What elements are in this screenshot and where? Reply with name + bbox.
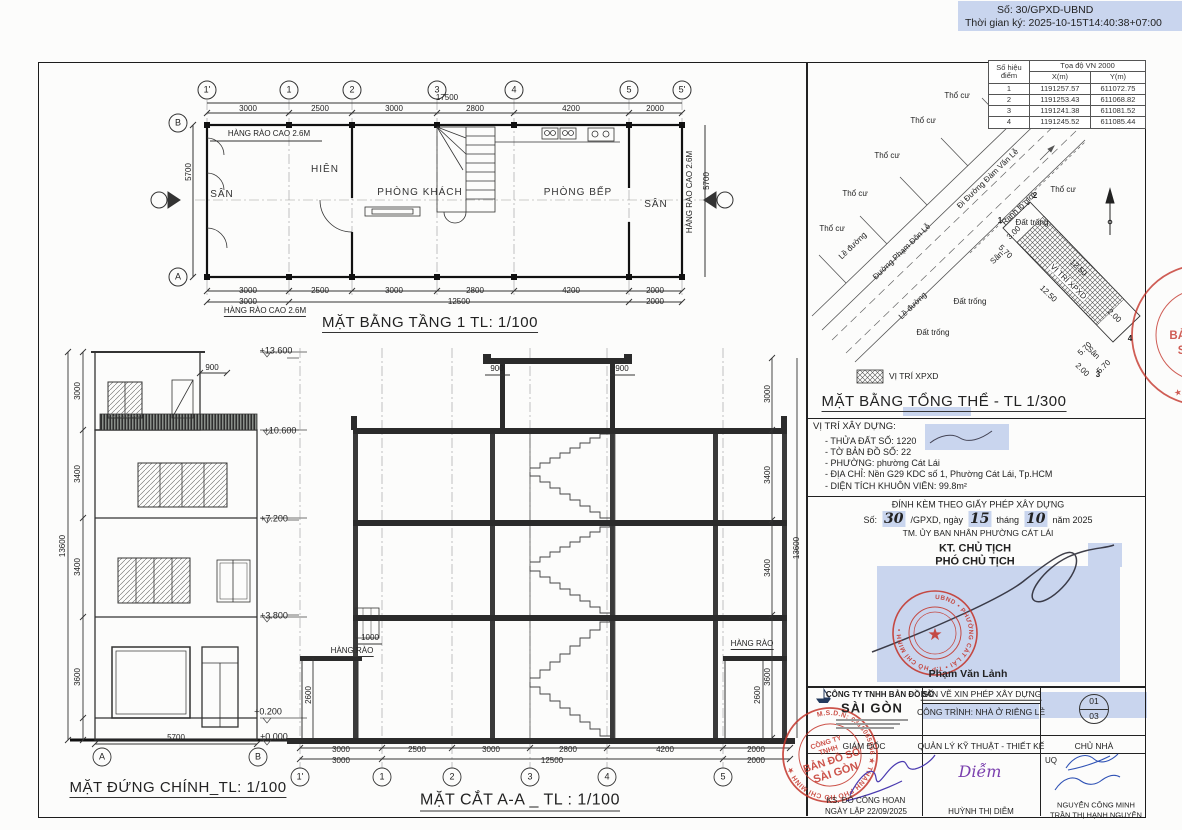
- lot-label: Đất trống: [954, 298, 987, 306]
- director-name: KS. ĐỖ CÔNG HOAN: [827, 797, 906, 805]
- cell: 611072.75: [1090, 83, 1145, 94]
- room-label: PHÒNG BẾP: [544, 188, 612, 198]
- fence-note: HÀNG RÀO CAO 2.6M: [224, 307, 306, 317]
- dim-label: 4200: [656, 746, 674, 754]
- lot-label: Thổ cư: [1050, 186, 1075, 194]
- room-label: SÂN: [644, 200, 668, 210]
- company-name-line1: CÔNG TY TNHH BẢN ĐỒ SỐ: [826, 691, 934, 699]
- dim-label: 900: [615, 365, 628, 373]
- permit-year: năm 2025: [1053, 515, 1093, 525]
- dim-label: 4200: [562, 105, 580, 113]
- level-label: +0.200: [254, 708, 282, 717]
- level-label: +13.600: [260, 347, 293, 356]
- fence-note: HÀNG RÀO CAO 2.6M: [686, 151, 694, 233]
- coord-col-x: X(m): [1030, 72, 1091, 83]
- grid-bubble-label: 1': [204, 86, 211, 95]
- dim-label: 3000: [385, 105, 403, 113]
- title-block-h2: [806, 753, 1146, 754]
- dim-label: 2500: [311, 287, 329, 295]
- site-plan-title: MẶT BẰNG TỔNG THỂ - TL 1/300: [822, 394, 1067, 412]
- level-label: ±0.000: [260, 733, 287, 742]
- project-label: CÔNG TRÌNH: NHÀ Ở RIÊNG LẺ: [917, 708, 1045, 717]
- dim-label: 900: [490, 365, 503, 373]
- sheet-border: [38, 62, 1146, 818]
- title-block-split: [922, 703, 1040, 704]
- lot-label: Đất trống: [1016, 219, 1049, 227]
- grid-bubble-label: 2: [349, 86, 354, 95]
- permit-signer-name: Phạm Văn Lảnh: [929, 669, 1008, 680]
- stamp-line: BẢN ĐỒ SỐ: [1169, 328, 1182, 342]
- permit-month: 10: [1024, 511, 1047, 527]
- grid-bubble-label: 1': [297, 773, 304, 782]
- cell: 1: [989, 83, 1030, 94]
- dim-label: 4200: [562, 287, 580, 295]
- title-block-top: [806, 686, 1146, 688]
- permit-kt-line: KT. CHỦ TỊCH: [939, 544, 1011, 555]
- table-row: 11191257.57611072.75: [989, 83, 1146, 94]
- column-header-designer: QUẢN LÝ KỸ THUẬT - THIẾT KẾ: [918, 742, 1045, 751]
- title-block-v1: [922, 686, 923, 816]
- drawing-type-label: BẢN VẼ XIN PHÉP XÂY DỰNG: [921, 690, 1042, 701]
- point-label: 4: [1128, 335, 1132, 343]
- panel-divider: [806, 62, 808, 816]
- level-label: +7.200: [260, 515, 288, 524]
- build-info-box-bottom: [806, 496, 1146, 497]
- dim-label: 2600: [754, 686, 762, 704]
- room-label: HIÊN: [311, 165, 339, 175]
- table-row: 41191245.52611085.44: [989, 117, 1146, 128]
- dim-label: 2800: [559, 746, 577, 754]
- cell: 4: [989, 117, 1030, 128]
- permit-pho-line: PHÓ CHỦ TỊCH: [935, 557, 1014, 568]
- dim-label: 3000: [332, 757, 350, 765]
- dim-label: 5700: [185, 163, 193, 181]
- fence-note: HÀNG RÀO CAO 2.6M: [228, 130, 310, 138]
- dim-label: 900: [205, 364, 218, 372]
- grid-bubble-label: B: [175, 119, 181, 128]
- room-label: SÂN: [210, 190, 234, 200]
- build-info-line: - TỜ BẢN ĐỒ SỐ: 22: [825, 447, 911, 457]
- dim-label: 3600: [764, 668, 772, 686]
- build-info-line: - PHƯỜNG: phường Cát Lái: [825, 458, 940, 468]
- company-address-line: [836, 727, 894, 729]
- permit-month-label: tháng: [996, 515, 1019, 525]
- stamp-line: SÀI GÒN: [1178, 344, 1182, 357]
- lot-label: Thổ cư: [819, 225, 844, 233]
- dim-label: 3000: [239, 105, 257, 113]
- grid-bubble-label: 3: [527, 773, 532, 782]
- title-block-h1: [806, 735, 1146, 736]
- dim-label: 3000: [385, 287, 403, 295]
- table-row: 31191241.38611081.52: [989, 106, 1146, 117]
- company-name-line2: SÀI GÒN: [841, 702, 903, 715]
- dim-label: 17500: [436, 94, 458, 102]
- dim-label: 2000: [646, 287, 664, 295]
- cell: 611068.82: [1090, 94, 1145, 105]
- dim-label: 13600: [59, 535, 67, 557]
- cell: 611085.44: [1090, 117, 1145, 128]
- grid-bubble-label: 4: [511, 86, 516, 95]
- cell: 3: [989, 106, 1030, 117]
- fence-note: HÀNG RÀO: [731, 640, 774, 650]
- cell: 1191241.38: [1030, 106, 1091, 117]
- dim-label: 3000: [239, 298, 257, 306]
- dim-label: 13600: [793, 537, 801, 559]
- company-address-line: [836, 723, 900, 725]
- fence-note: HÀNG RÀO: [331, 647, 374, 657]
- permit-tm-line: TM. ỦY BAN NHÂN PHƯỜNG CÁT LÁI: [903, 529, 1054, 538]
- dim-label: 3000: [74, 382, 82, 400]
- lot-label: Thổ cư: [842, 190, 867, 198]
- dim-label: 2000: [646, 105, 664, 113]
- lot-label: Thổ cư: [910, 117, 935, 125]
- dim-label: 3000: [239, 287, 257, 295]
- permit-no-mid: /GPXD, ngày: [910, 515, 963, 525]
- cell: 2: [989, 94, 1030, 105]
- level-label: +10.600: [264, 427, 297, 436]
- dim-label: 3000: [332, 746, 350, 754]
- point-label: 1: [998, 217, 1002, 225]
- coordinate-table: Số hiệu điểm Tọa độ VN 2000 X(m) Y(m) 11…: [988, 60, 1146, 129]
- elevation-title: MẶT ĐỨNG CHÍNH_TL: 1/100: [69, 780, 286, 798]
- permit-attach-line: ĐÍNH KÈM THEO GIẤY PHÉP XÂY DỰNG: [892, 501, 1065, 510]
- section-title: MẶT CẮT A-A _ TL : 1/100: [420, 793, 620, 812]
- company-address-line: [836, 719, 908, 721]
- column-header-director: GIÁM ĐỐC: [843, 742, 886, 751]
- table-row: 21191253.43611068.82: [989, 94, 1146, 105]
- dim-label: 12500: [541, 757, 563, 765]
- grid-bubble-label: 5: [720, 773, 725, 782]
- cell: 1191253.43: [1030, 94, 1091, 105]
- dim-label: 5700: [167, 734, 185, 742]
- edge-stamp-ring-text: M.S.D.N: 0318065956 ★ THÀNH PHỐ HỒ CHÍ M…: [1172, 268, 1182, 402]
- dim-label: 3600: [74, 668, 82, 686]
- cell: 611081.52: [1090, 106, 1145, 117]
- dim-label: 2500: [408, 746, 426, 754]
- sheet-number: 01: [1080, 695, 1108, 710]
- grid-bubble-label: A: [175, 273, 181, 282]
- dim-label: 3400: [74, 558, 82, 576]
- permit-day: 15: [968, 511, 991, 527]
- build-info-line: - ĐỊA CHỈ: Nền G29 KDC số 1, Phường Cát …: [825, 469, 1052, 479]
- permit-no-prefix: Số:: [863, 515, 877, 525]
- grid-bubble-label: 5: [626, 86, 631, 95]
- title-block-v2: [1040, 686, 1041, 816]
- floor-plan-title: MẶT BẰNG TẦNG 1 TL: 1/100: [322, 315, 538, 333]
- dim-label: 3000: [764, 385, 772, 403]
- lot-label: Đất trống: [917, 329, 950, 337]
- coord-col-y: Y(m): [1090, 72, 1145, 83]
- level-label: +3.800: [260, 612, 288, 621]
- build-info-title: VỊ TRÍ XÂY DỰNG:: [813, 422, 896, 433]
- dim-label: 2000: [747, 746, 765, 754]
- grid-bubble-label: 2: [449, 773, 454, 782]
- dim-label: 2800: [466, 287, 484, 295]
- owner-name-1: NGUYỄN CÔNG MINH: [1057, 801, 1135, 809]
- dim-label: 2500: [311, 105, 329, 113]
- sheet-number-circle: 01 03: [1079, 694, 1109, 724]
- cell: 1191245.52: [1030, 117, 1091, 128]
- designer-name: HUỲNH THỊ DIỄM: [948, 808, 1014, 816]
- permit-no-value: 30: [882, 511, 905, 527]
- dim-label: 3000: [482, 746, 500, 754]
- doc-sign-time: Thời gian ký: 2025-10-15T14:40:38+07:00: [965, 17, 1162, 29]
- coord-col-group: Tọa độ VN 2000: [1030, 61, 1146, 72]
- build-info-box-top: [806, 418, 1146, 419]
- grid-bubble-label: 1: [286, 86, 291, 95]
- designer-signature: Diễm: [959, 764, 1002, 780]
- dim-label: 3400: [764, 466, 772, 484]
- grid-bubble-label: 5': [679, 86, 686, 95]
- cell: 1191257.57: [1030, 83, 1091, 94]
- dim-label: 2800: [466, 105, 484, 113]
- coord-col-point: Số hiệu điểm: [989, 61, 1030, 84]
- dim-label: 5700: [703, 172, 711, 190]
- doc-number: Số: 30/GPXD-UBND: [997, 4, 1093, 16]
- grid-bubble-label: B: [255, 753, 261, 762]
- dim-label: 2600: [305, 686, 313, 704]
- build-info-line: - THỬA ĐẤT SỐ: 1220: [825, 436, 916, 446]
- dim-label: 3400: [764, 559, 772, 577]
- column-header-owner: CHỦ NHÀ: [1075, 742, 1114, 751]
- permit-drawing-sheet: UBND • PHƯỜNG CÁT LÁI • T.P HỒ CHÍ MINH …: [0, 0, 1182, 830]
- owner-name-2: TRẦN THỊ HẠNH NGUYÊN: [1050, 811, 1142, 819]
- grid-bubble-label: 4: [604, 773, 609, 782]
- grid-bubble-label: A: [99, 753, 105, 762]
- dim-label: 12500: [448, 298, 470, 306]
- grid-bubble-label: 1: [379, 773, 384, 782]
- point-label: 3: [1096, 371, 1100, 379]
- build-info-line: - DIỆN TÍCH KHUÔN VIÊN: 99.8m²: [825, 481, 967, 491]
- lot-label: Thổ cư: [944, 92, 969, 100]
- dim-label: 3400: [74, 465, 82, 483]
- legend-label: VỊ TRÍ XPXD: [889, 372, 938, 382]
- uq-label: UQ: [1045, 756, 1057, 765]
- dim-label: 2000: [747, 757, 765, 765]
- point-label: 2: [1033, 192, 1037, 200]
- dim-label: 2000: [646, 298, 664, 306]
- dim-label: 1000: [361, 634, 379, 642]
- svg-text:M.S.D.N: 0318065956 ★ THÀNH PH: M.S.D.N: 0318065956 ★ THÀNH PHỐ HỒ CHÍ M…: [1172, 268, 1182, 402]
- permit-number-line: Số: 30 /GPXD, ngày 15 tháng 10 năm 2025: [863, 511, 1092, 527]
- room-label: PHÒNG KHÁCH: [377, 188, 462, 198]
- lot-label: Thổ cư: [874, 152, 899, 160]
- created-date: NGÀY LẬP 22/09/2025: [825, 808, 907, 816]
